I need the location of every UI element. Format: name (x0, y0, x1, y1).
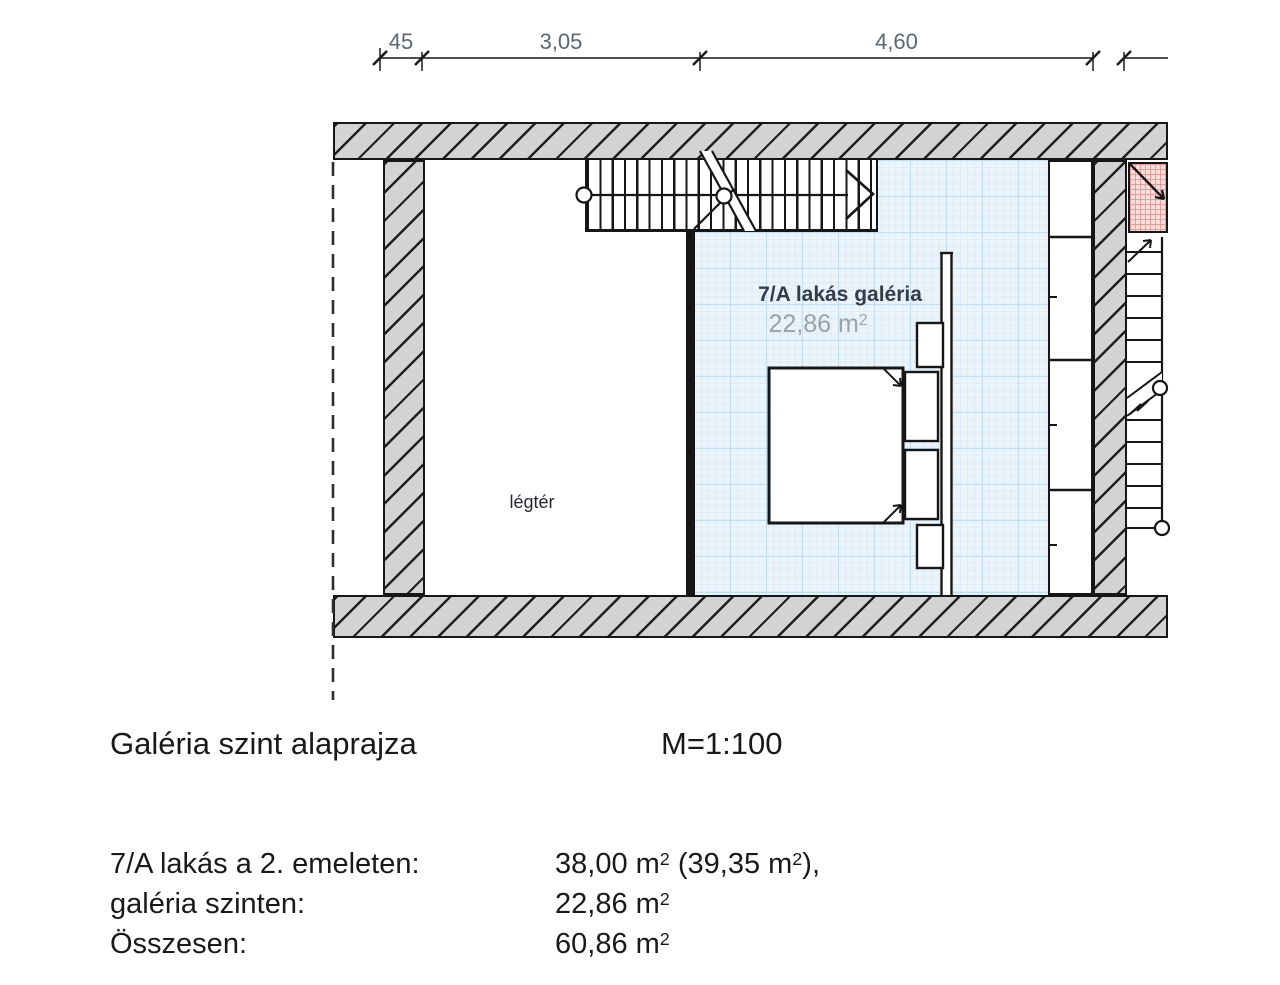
wall-left (383, 160, 425, 595)
floor-plan-page: 45 3,05 4,60 (0, 0, 1280, 985)
shaft-red-area (1128, 162, 1168, 233)
dim-label-3-05: 3,05 (422, 29, 700, 55)
stair-run-top (585, 160, 878, 232)
wall-top (333, 122, 1168, 160)
area-summary: 7/A lakás a 2. emeleten:38,00 m2 (39,35 … (110, 846, 820, 966)
void-room-label: légtér (472, 492, 592, 513)
gallery-area-value: 22,86 m2 (694, 310, 942, 339)
wall-right (1093, 160, 1127, 595)
summary-label: 7/A lakás a 2. emeleten: (110, 846, 555, 883)
summary-label: Összesen: (110, 926, 555, 963)
summary-value: 38,00 m2 (39,35 m2), (555, 848, 820, 880)
summary-row-gallery: galéria szinten:22,86 m2 (110, 886, 820, 926)
gallery-room-label: 7/A lakás galéria (716, 283, 964, 307)
gallery-divider-wall (686, 230, 695, 595)
dim-label-45: 45 (380, 29, 422, 55)
dim-label-4-60: 4,60 (700, 29, 1093, 55)
drawing-title: Galéria szint alaprajza (110, 726, 417, 762)
stair-up-arrow (1128, 240, 1151, 262)
summary-row-floor: 7/A lakás a 2. emeleten:38,00 m2 (39,35 … (110, 846, 820, 886)
summary-value: 60,86 m2 (555, 928, 670, 960)
summary-row-total: Összesen:60,86 m2 (110, 926, 820, 966)
summary-label: galéria szinten: (110, 886, 555, 923)
summary-value: 22,86 m2 (555, 888, 670, 920)
stair-right-outside (1127, 237, 1169, 535)
wall-bottom (333, 595, 1168, 638)
wardrobe-strip (1048, 160, 1093, 595)
drawing-scale: M=1:100 (661, 726, 783, 762)
